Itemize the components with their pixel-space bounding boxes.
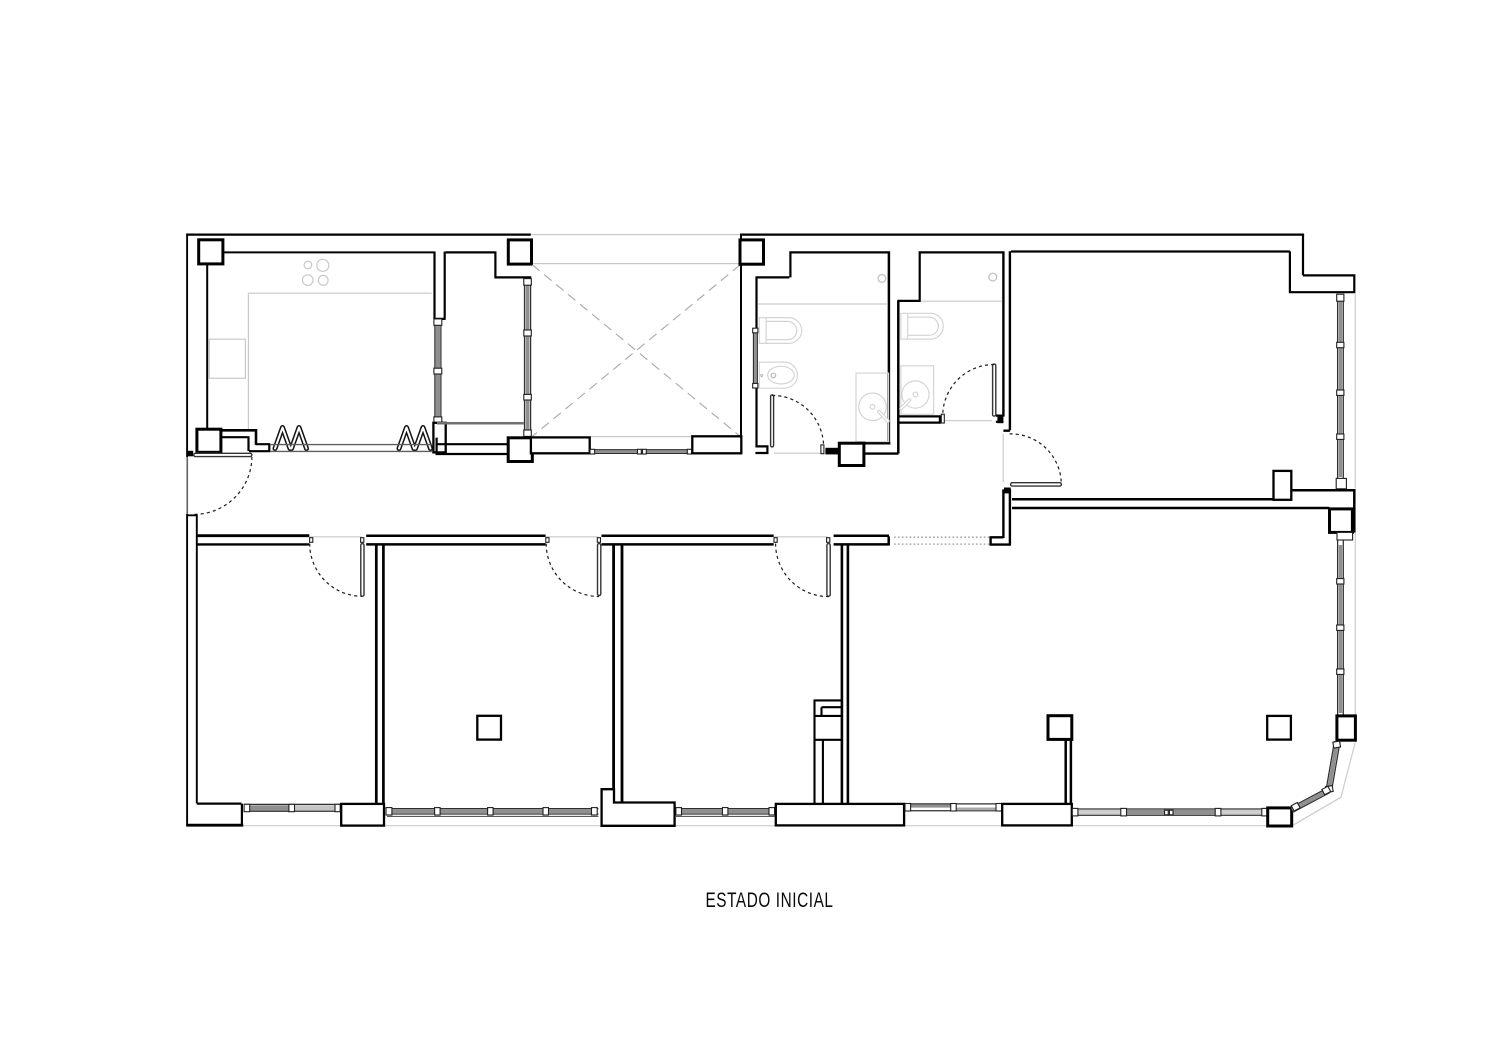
svg-text:ESTADO INICIAL: ESTADO INICIAL (706, 888, 834, 912)
